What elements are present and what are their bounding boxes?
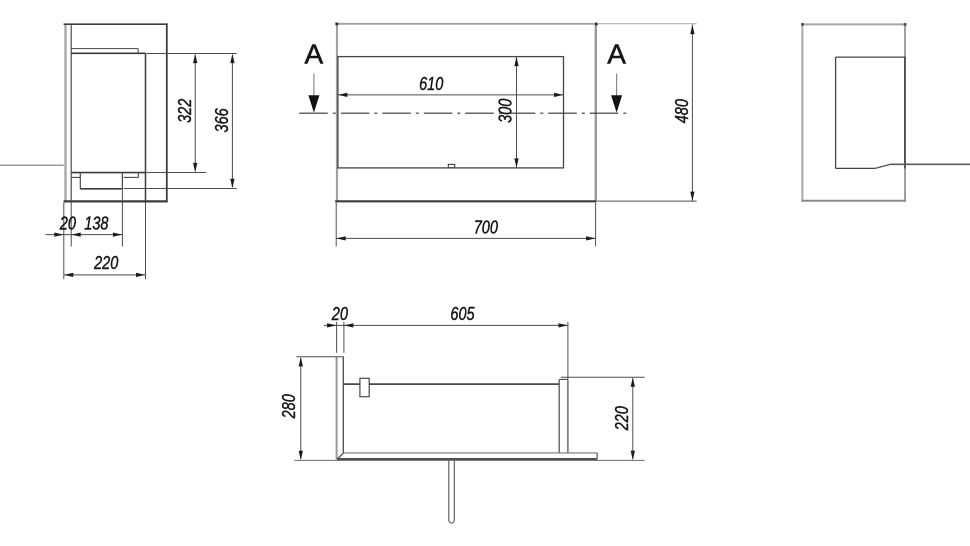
svg-text:480: 480 [672,99,692,123]
svg-text:300: 300 [496,99,516,123]
svg-text:610: 610 [419,74,443,94]
svg-text:20: 20 [59,214,76,234]
svg-text:322: 322 [175,99,195,123]
svg-text:138: 138 [84,214,108,234]
svg-text:700: 700 [474,217,498,237]
svg-text:A: A [305,39,324,70]
svg-text:20: 20 [331,304,348,324]
svg-text:280: 280 [279,394,299,419]
svg-text:220: 220 [93,253,118,273]
svg-text:A: A [607,39,626,70]
svg-text:366: 366 [212,108,232,133]
svg-text:605: 605 [450,304,475,324]
svg-text:220: 220 [612,406,632,431]
